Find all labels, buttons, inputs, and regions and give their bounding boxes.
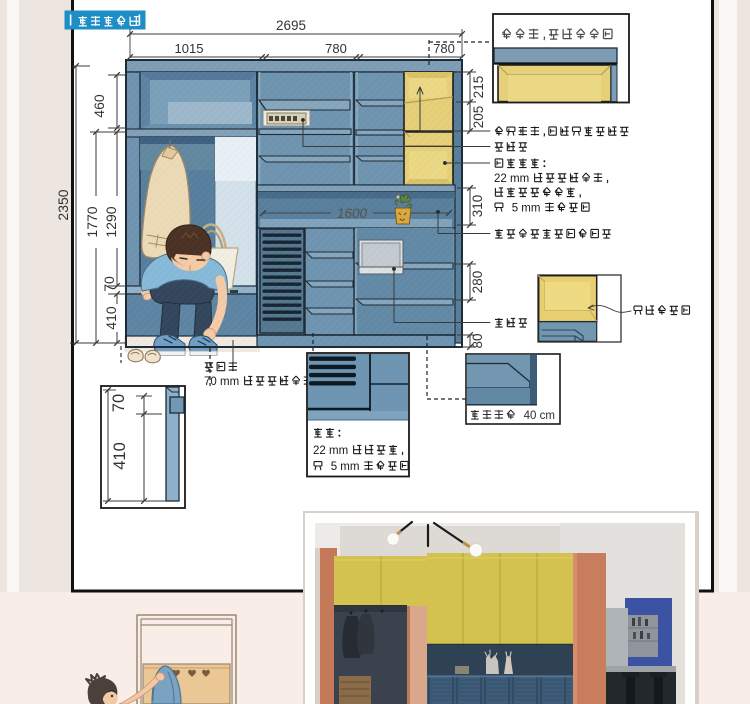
svg-text:205: 205 bbox=[471, 106, 486, 129]
svg-text:780: 780 bbox=[433, 41, 455, 56]
svg-text:215: 215 bbox=[471, 76, 486, 99]
svg-text:22 mm: 22 mm bbox=[494, 173, 529, 185]
svg-text:280: 280 bbox=[470, 271, 485, 294]
svg-text:80: 80 bbox=[470, 333, 485, 348]
svg-text:410: 410 bbox=[111, 442, 129, 470]
svg-text:2695: 2695 bbox=[276, 18, 306, 33]
svg-text:1015: 1015 bbox=[175, 41, 204, 56]
svg-text:1290: 1290 bbox=[103, 206, 119, 237]
svg-text:70: 70 bbox=[110, 394, 128, 412]
svg-text:310: 310 bbox=[470, 195, 485, 218]
svg-text:1770: 1770 bbox=[84, 206, 100, 237]
svg-text:5 mm: 5 mm bbox=[512, 203, 541, 215]
svg-text:70: 70 bbox=[101, 276, 117, 292]
svg-text:460: 460 bbox=[91, 94, 107, 118]
svg-text:5 mm: 5 mm bbox=[331, 461, 360, 473]
svg-text:780: 780 bbox=[325, 41, 347, 56]
svg-text:40 cm: 40 cm bbox=[524, 410, 555, 422]
svg-text:410: 410 bbox=[103, 306, 119, 330]
svg-text:2350: 2350 bbox=[55, 189, 71, 220]
svg-text:70 mm: 70 mm bbox=[204, 376, 239, 388]
svg-text:22 mm: 22 mm bbox=[313, 445, 348, 457]
